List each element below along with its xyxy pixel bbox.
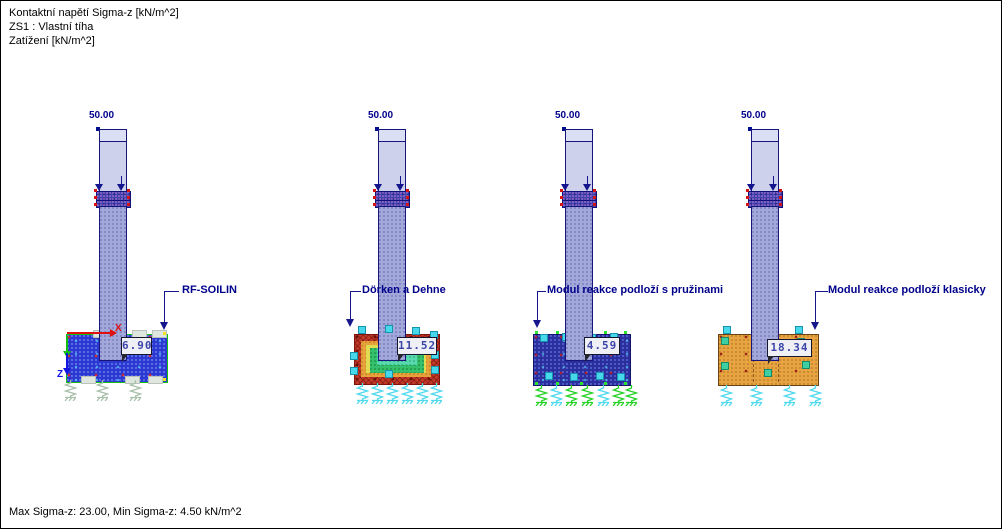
load-arrow-icon bbox=[117, 176, 126, 191]
mesh-node-dot bbox=[94, 196, 97, 199]
spring-support-icon bbox=[549, 385, 564, 406]
load-value-label-4: 50.00 bbox=[741, 110, 766, 121]
mesh-line bbox=[753, 359, 754, 382]
value-box-tail bbox=[398, 354, 404, 362]
spring-support-icon bbox=[749, 384, 764, 407]
load-arrow-icon bbox=[396, 176, 405, 191]
mesh-node-dot bbox=[373, 189, 376, 192]
leader-line bbox=[350, 291, 351, 320]
mesh-node-dot bbox=[373, 196, 376, 199]
corner-node-dot bbox=[163, 332, 166, 335]
leader-line bbox=[164, 291, 179, 292]
spring-support-icon bbox=[385, 383, 400, 404]
load-value-label-2: 50.00 bbox=[368, 110, 393, 121]
spring-node-dot bbox=[556, 331, 559, 334]
mesh-node-dot bbox=[593, 196, 596, 199]
contact-stress-value-4[interactable]: 18.34 bbox=[767, 339, 812, 357]
mesh-node-dot bbox=[779, 196, 782, 199]
leader-arrow-icon bbox=[533, 320, 541, 328]
leader-line bbox=[164, 291, 165, 323]
mesh-node-dot bbox=[94, 189, 97, 192]
mesh-line bbox=[778, 359, 779, 382]
node-marker bbox=[385, 325, 393, 333]
contact-stress-value-1[interactable]: 6.90 bbox=[121, 337, 152, 355]
leader-line bbox=[537, 291, 538, 321]
x-axis-line bbox=[67, 332, 110, 334]
mesh-node-dot bbox=[406, 196, 409, 199]
y-axis-line bbox=[66, 336, 68, 352]
node-marker bbox=[431, 366, 439, 374]
node-marker bbox=[721, 337, 729, 345]
contact-stress-value-3[interactable]: 4.59 bbox=[584, 337, 620, 355]
load-value-label-3: 50.00 bbox=[555, 110, 580, 121]
support-pad bbox=[81, 376, 96, 384]
mesh-node-dot bbox=[560, 203, 563, 206]
result-extremes-summary: Max Sigma-z: 23.00, Min Sigma-z: 4.50 kN… bbox=[9, 506, 242, 518]
spring-support-icon bbox=[782, 384, 797, 407]
node-marker bbox=[723, 326, 731, 334]
node-marker bbox=[412, 327, 420, 335]
load-block-cap bbox=[100, 130, 126, 142]
node-marker bbox=[802, 361, 810, 369]
spring-support-icon bbox=[95, 380, 110, 401]
corner-node-dot bbox=[163, 378, 166, 381]
spring-node-dot bbox=[604, 331, 607, 334]
z-axis-label: Z bbox=[57, 369, 63, 380]
spring-support-icon bbox=[415, 383, 430, 404]
spring-support-icon bbox=[808, 384, 823, 407]
spring-support-icon bbox=[429, 383, 444, 404]
model-label-1[interactable]: RF-SOILIN bbox=[182, 284, 237, 296]
spring-node-dot bbox=[624, 331, 627, 334]
load-arrow-icon bbox=[583, 176, 592, 191]
model-label-4[interactable]: Modul reakce podloží klasicky bbox=[828, 284, 986, 296]
node-marker bbox=[617, 373, 625, 381]
mesh-node-dot bbox=[779, 203, 782, 206]
mesh-node-dot bbox=[746, 189, 749, 192]
z-axis-line bbox=[66, 353, 68, 369]
leader-line bbox=[537, 291, 546, 292]
value-box-tail bbox=[585, 354, 591, 362]
spring-support-icon bbox=[63, 380, 78, 401]
mesh-node-dot bbox=[406, 189, 409, 192]
mesh-node-dot bbox=[746, 196, 749, 199]
mesh-node-dot bbox=[127, 196, 130, 199]
load-block-cap bbox=[566, 130, 592, 142]
node-marker bbox=[721, 362, 729, 370]
value-box-tail bbox=[122, 354, 128, 362]
model-label-2[interactable]: Dörken a Dehne bbox=[362, 284, 446, 296]
node-marker bbox=[570, 373, 578, 381]
load-block-cap bbox=[379, 130, 405, 142]
mesh-node-dot bbox=[593, 203, 596, 206]
load-case-title: ZS1 : Vlastní tíha bbox=[9, 21, 93, 33]
spring-support-icon bbox=[624, 385, 639, 406]
model-label-3[interactable]: Modul reakce podloží s pružinami bbox=[547, 284, 723, 296]
leader-arrow-icon bbox=[346, 319, 354, 327]
node-marker bbox=[358, 326, 366, 334]
spring-node-dot bbox=[535, 331, 538, 334]
spring-support-icon bbox=[370, 383, 385, 404]
support-pad bbox=[148, 376, 163, 384]
spring-support-icon bbox=[400, 383, 415, 404]
spring-support-icon bbox=[596, 385, 611, 406]
spring-support-icon bbox=[564, 385, 579, 406]
mesh-node-dot bbox=[560, 196, 563, 199]
node-marker bbox=[350, 352, 358, 360]
mesh-node-dot bbox=[373, 203, 376, 206]
leader-arrow-icon bbox=[160, 322, 168, 330]
mesh-node-dot bbox=[746, 203, 749, 206]
contact-stress-value-2[interactable]: 11.52 bbox=[397, 337, 437, 355]
load-arrow-icon bbox=[769, 176, 778, 191]
mesh-node-dot bbox=[127, 189, 130, 192]
leader-arrow-icon bbox=[811, 322, 819, 330]
spring-support-icon bbox=[534, 385, 549, 406]
result-title: Kontaktní napětí Sigma-z [kN/m^2] bbox=[9, 7, 179, 19]
leader-line bbox=[350, 291, 361, 292]
node-marker bbox=[545, 372, 553, 380]
x-axis-label: X bbox=[115, 323, 122, 334]
mesh-node-dot bbox=[94, 203, 97, 206]
mesh-node-dot bbox=[406, 203, 409, 206]
load-unit-title: Zatížení [kN/m^2] bbox=[9, 35, 95, 47]
mesh-node-dot bbox=[779, 189, 782, 192]
result-viewport: Kontaktní napětí Sigma-z [kN/m^2] ZS1 : … bbox=[0, 0, 1002, 529]
node-marker bbox=[596, 372, 604, 380]
column-shaft-4[interactable] bbox=[751, 206, 779, 361]
mesh-node-dot bbox=[560, 189, 563, 192]
node-marker bbox=[764, 369, 772, 377]
z-axis-arrow-icon bbox=[63, 368, 71, 375]
spring-support-icon bbox=[719, 384, 734, 407]
leader-line bbox=[816, 291, 828, 292]
spring-support-icon bbox=[128, 380, 143, 401]
load-block-cap bbox=[752, 130, 778, 142]
value-box-tail bbox=[768, 356, 774, 364]
leader-line bbox=[815, 291, 816, 323]
mesh-node-dot bbox=[127, 203, 130, 206]
node-marker bbox=[350, 367, 358, 375]
spring-support-icon bbox=[580, 385, 595, 406]
load-value-label-1: 50.00 bbox=[89, 110, 114, 121]
mesh-node-dot bbox=[593, 189, 596, 192]
node-marker bbox=[385, 370, 393, 378]
node-marker bbox=[795, 326, 803, 334]
node-marker bbox=[540, 334, 548, 342]
spring-support-icon bbox=[355, 383, 370, 404]
